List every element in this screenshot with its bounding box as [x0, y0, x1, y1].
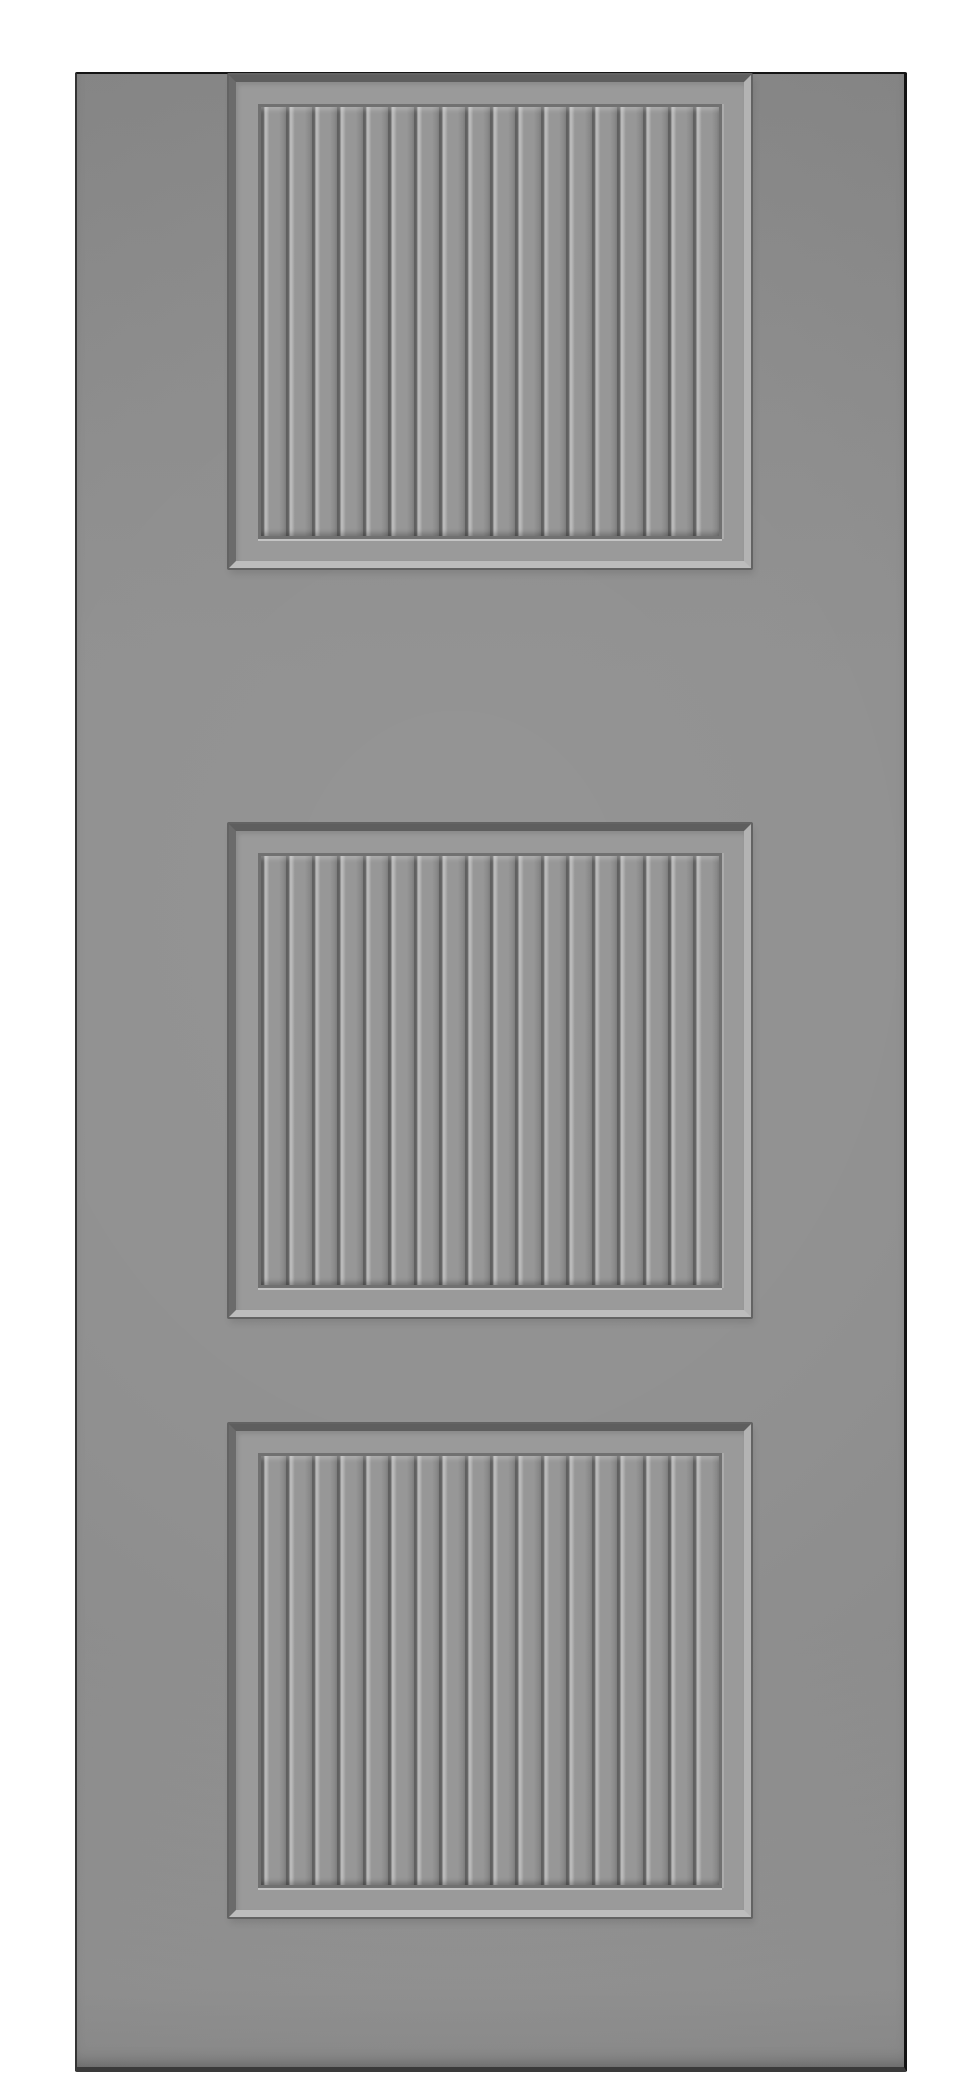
beadboard-slat	[312, 1456, 337, 1885]
beadboard-slat	[490, 107, 515, 536]
beadboard-slat	[414, 1456, 439, 1885]
beadboard-slat	[643, 1456, 668, 1885]
beadboard-slat	[668, 856, 693, 1285]
beadboard-slat	[566, 1456, 591, 1885]
beadboard-slat	[312, 856, 337, 1285]
beadboard-slat	[617, 856, 642, 1285]
beadboard-slat	[465, 1456, 490, 1885]
beadboard-slat	[337, 107, 362, 536]
beadboard-slat	[515, 107, 540, 536]
beadboard-slat	[490, 856, 515, 1285]
beadboard-field	[258, 853, 722, 1288]
beadboard-slat	[337, 1456, 362, 1885]
door-panel-1	[228, 823, 752, 1318]
beadboard-slat	[286, 107, 311, 536]
beadboard-slat	[312, 107, 337, 536]
beadboard-slat	[693, 107, 718, 536]
beadboard-slat	[388, 856, 413, 1285]
door-panel-2	[228, 1423, 752, 1918]
beadboard-slat	[261, 107, 286, 536]
beadboard-field	[258, 1453, 722, 1888]
beadboard-slat	[541, 107, 566, 536]
beadboard-slat	[541, 1456, 566, 1885]
beadboard-slat	[286, 1456, 311, 1885]
beadboard-slat	[617, 1456, 642, 1885]
beadboard-slat	[490, 1456, 515, 1885]
beadboard-slat	[439, 856, 464, 1285]
product-image-canvas	[0, 0, 980, 2100]
beadboard-slat	[617, 107, 642, 536]
beadboard-slat	[261, 1456, 286, 1885]
beadboard-slat	[363, 1456, 388, 1885]
beadboard-slat	[363, 856, 388, 1285]
beadboard-slat	[388, 107, 413, 536]
beadboard-slat	[414, 107, 439, 536]
beadboard-slat	[439, 107, 464, 536]
beadboard-slat	[414, 856, 439, 1285]
beadboard-slat	[643, 856, 668, 1285]
beadboard-slat	[668, 107, 693, 536]
beadboard-slat	[566, 856, 591, 1285]
beadboard-slat	[261, 856, 286, 1285]
beadboard-slat	[515, 1456, 540, 1885]
beadboard-slat	[668, 1456, 693, 1885]
beadboard-slat	[693, 1456, 718, 1885]
beadboard-slat	[515, 856, 540, 1285]
beadboard-slat	[286, 856, 311, 1285]
beadboard-slat	[592, 856, 617, 1285]
door-panel-3	[228, 74, 752, 569]
beadboard-field	[258, 104, 722, 539]
beadboard-slat	[337, 856, 362, 1285]
beadboard-slat	[388, 1456, 413, 1885]
beadboard-slat	[592, 1456, 617, 1885]
beadboard-slat	[439, 1456, 464, 1885]
beadboard-slat	[566, 107, 591, 536]
beadboard-slat	[465, 107, 490, 536]
beadboard-slat	[363, 107, 388, 536]
door-slab	[75, 72, 907, 2072]
beadboard-slat	[465, 856, 490, 1285]
beadboard-slat	[643, 107, 668, 536]
beadboard-slat	[693, 856, 718, 1285]
beadboard-slat	[592, 107, 617, 536]
beadboard-slat	[541, 856, 566, 1285]
